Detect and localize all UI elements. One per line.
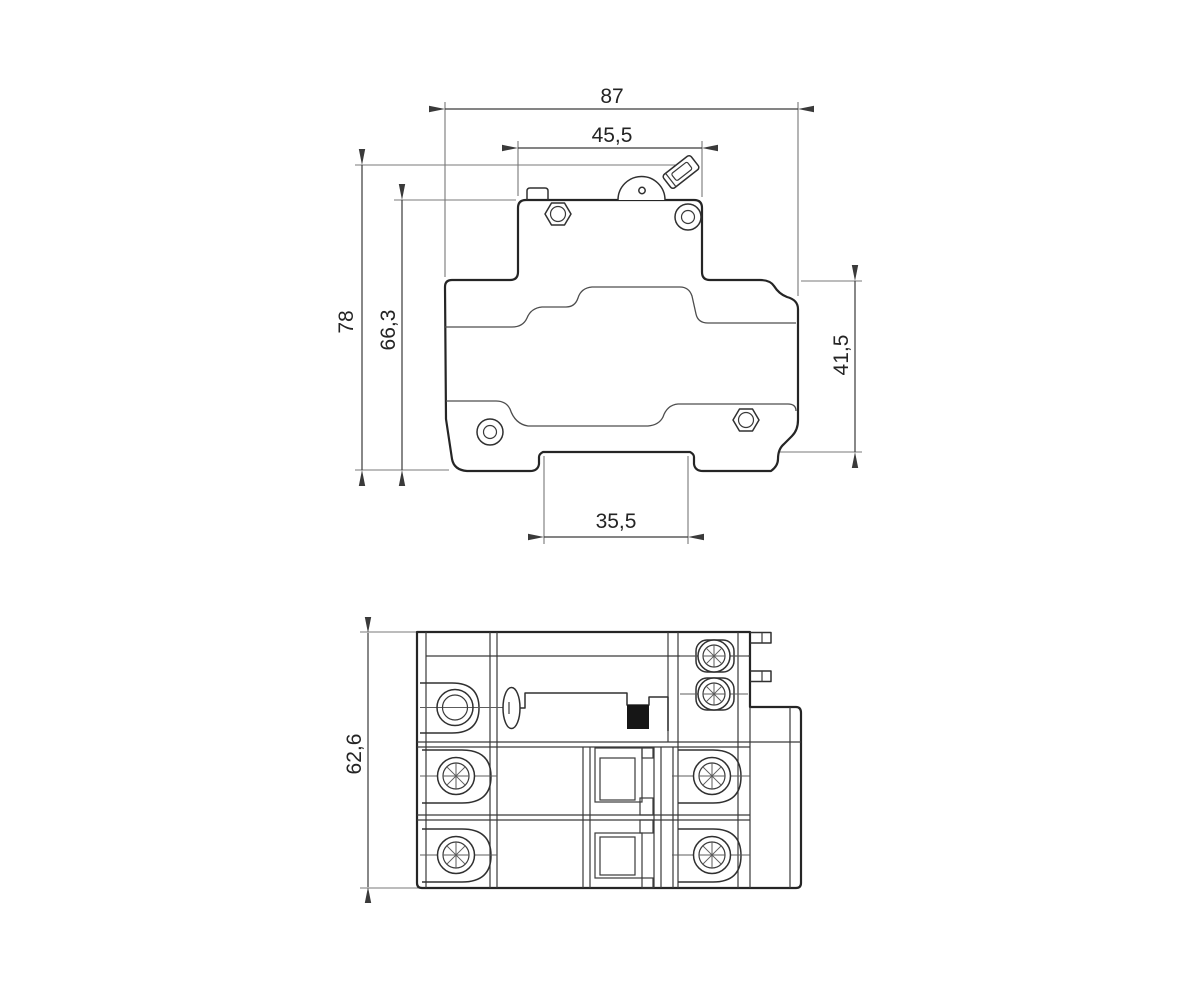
dim-label-depth: 62,6 — [343, 734, 366, 775]
terminal-pin-2 — [750, 671, 771, 682]
dim-label-upper-body-width: 45,5 — [592, 124, 633, 147]
rivet-bottom-left — [477, 419, 503, 445]
top-view: 62,6 — [343, 632, 801, 888]
lever-pivot-pin — [639, 187, 645, 193]
pin-outline — [750, 633, 771, 644]
terminal-screw — [438, 837, 475, 874]
terminal-screw — [698, 678, 730, 710]
dim-body-height: 66,3 — [377, 200, 402, 470]
dim-depth: 62,6 — [343, 633, 368, 887]
dim-label-din-channel-width: 35,5 — [596, 510, 637, 533]
terminal-screw — [438, 758, 475, 795]
side-view: 87 45,5 78 66,3 41,5 35,5 — [335, 85, 862, 544]
toggle-switch — [627, 705, 649, 729]
dim-label-right-side-height: 41,5 — [830, 335, 853, 376]
hex-nut-top-left — [545, 203, 571, 225]
rivet-top-right — [675, 204, 701, 230]
hex-nut-bottom-right — [733, 409, 759, 431]
dim-label-body-height: 66,3 — [377, 310, 400, 351]
rivet-outer — [477, 419, 503, 445]
terminal-screw — [694, 758, 731, 795]
dim-upper-body-width: 45,5 — [518, 124, 702, 148]
terminal-screw — [698, 640, 730, 672]
top-tab — [527, 188, 548, 200]
breaker-top-outline — [417, 632, 801, 888]
terminal-pin-1 — [750, 633, 771, 644]
pin-outline — [750, 671, 771, 682]
dim-overall-height: 78 — [335, 165, 362, 470]
drawing-canvas: 87 45,5 78 66,3 41,5 35,5 — [0, 0, 1200, 982]
dim-right-side-height: 41,5 — [830, 281, 855, 452]
toggle-lever — [662, 155, 700, 190]
rivet-outer — [675, 204, 701, 230]
dim-label-overall-height: 78 — [335, 310, 358, 333]
dim-overall-width: 87 — [445, 85, 798, 109]
dim-label-overall-width: 87 — [600, 85, 623, 108]
terminal-screw — [694, 837, 731, 874]
extension-lines — [360, 632, 420, 888]
technical-drawing: 87 45,5 78 66,3 41,5 35,5 — [0, 0, 1200, 982]
lever-grip — [662, 155, 700, 190]
dim-din-channel-width: 35,5 — [544, 510, 688, 537]
